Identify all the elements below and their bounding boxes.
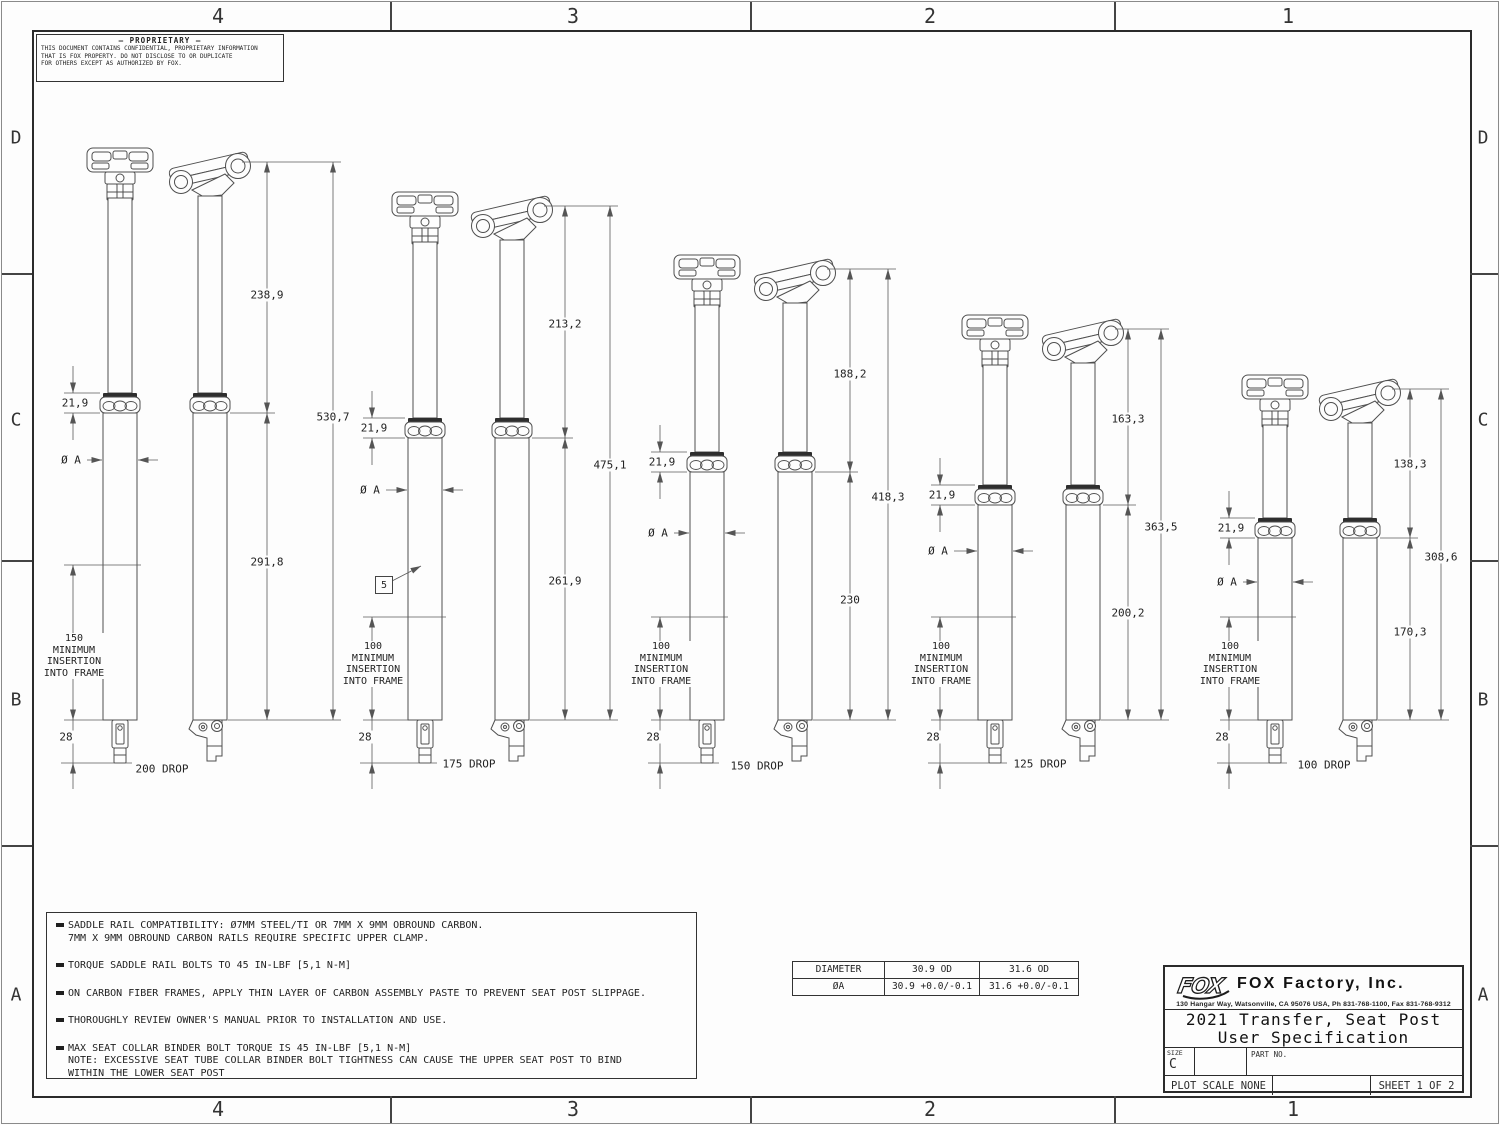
- dim-collar-label: 21,9: [1216, 522, 1247, 535]
- drop-label: 100 DROP: [1296, 759, 1353, 772]
- dim-diameter-label: Ø A: [646, 527, 670, 540]
- dim-upper-label: 188,2: [831, 368, 868, 381]
- insertion-note-line: 100: [631, 641, 691, 653]
- insertion-note-line: INTO FRAME: [1200, 676, 1260, 688]
- dim-lower-label: 170,3: [1391, 626, 1428, 639]
- insertion-note-line: INSERTION: [44, 656, 104, 668]
- drop-label: 125 DROP: [1012, 758, 1069, 771]
- dim-diameter-label: Ø A: [59, 454, 83, 467]
- insertion-note: 100MINIMUMINSERTIONINTO FRAME: [1198, 641, 1262, 687]
- insertion-note-line: INSERTION: [1200, 664, 1260, 676]
- insertion-note-line: 150: [44, 633, 104, 645]
- dim-upper-label: 238,9: [248, 289, 285, 302]
- insertion-note-line: MINIMUM: [1200, 653, 1260, 665]
- dim-total-label: 475,1: [591, 459, 628, 472]
- dim-upper-label: 138,3: [1391, 458, 1428, 471]
- insertion-note-line: INTO FRAME: [911, 676, 971, 688]
- insertion-note-line: MINIMUM: [44, 645, 104, 657]
- dim-lower-label: 200,2: [1109, 607, 1146, 620]
- insertion-note-line: MINIMUM: [911, 653, 971, 665]
- dim-diameter-label: Ø A: [1215, 576, 1239, 589]
- insertion-note-line: INTO FRAME: [44, 668, 104, 680]
- dim-collar-label: 21,9: [359, 422, 390, 435]
- dim-upper-label: 213,2: [546, 318, 583, 331]
- dim-tip-label: 28: [57, 731, 74, 744]
- insertion-note-line: INSERTION: [343, 664, 403, 676]
- dim-lower-label: 261,9: [546, 575, 583, 588]
- dim-total-label: 308,6: [1422, 551, 1459, 564]
- flag-note-5: 5: [375, 576, 393, 594]
- insertion-note-line: 100: [343, 641, 403, 653]
- dim-total-label: 530,7: [314, 411, 351, 424]
- dim-lower-label: 230: [838, 594, 862, 607]
- insertion-note: 150MINIMUMINSERTIONINTO FRAME: [42, 633, 106, 679]
- dim-tip-label: 28: [924, 731, 941, 744]
- insertion-note-line: 100: [911, 641, 971, 653]
- dim-diameter-label: Ø A: [358, 484, 382, 497]
- drawing-sheet: 4 3 2 1 4 3 2 1 D C B A D C B A — PROPRI…: [0, 0, 1500, 1125]
- insertion-note-line: MINIMUM: [343, 653, 403, 665]
- drop-label: 175 DROP: [441, 758, 498, 771]
- dim-diameter-label: Ø A: [926, 545, 950, 558]
- dim-lower-label: 291,8: [248, 556, 285, 569]
- insertion-note-line: INSERTION: [911, 664, 971, 676]
- insertion-note-line: INTO FRAME: [631, 676, 691, 688]
- insertion-note: 100MINIMUMINSERTIONINTO FRAME: [629, 641, 693, 687]
- dim-tip-label: 28: [1213, 731, 1230, 744]
- dim-collar-label: 21,9: [647, 456, 678, 469]
- insertion-note-line: INTO FRAME: [343, 676, 403, 688]
- insertion-note-line: 100: [1200, 641, 1260, 653]
- insertion-note-line: MINIMUM: [631, 653, 691, 665]
- dim-collar-label: 21,9: [927, 489, 958, 502]
- dim-collar-label: 21,9: [60, 397, 91, 410]
- insertion-note-line: INSERTION: [631, 664, 691, 676]
- dim-tip-label: 28: [644, 731, 661, 744]
- insertion-note: 100MINIMUMINSERTIONINTO FRAME: [909, 641, 973, 687]
- insertion-note: 100MINIMUMINSERTIONINTO FRAME: [341, 641, 405, 687]
- drop-label: 200 DROP: [134, 763, 191, 776]
- dim-total-label: 418,3: [869, 491, 906, 504]
- dim-upper-label: 163,3: [1109, 413, 1146, 426]
- dim-total-label: 363,5: [1142, 521, 1179, 534]
- dimension-labels: 238,9530,7291,821,9Ø A28200 DROP150MINIM…: [0, 0, 1500, 1125]
- drop-label: 150 DROP: [729, 760, 786, 773]
- dim-tip-label: 28: [356, 731, 373, 744]
